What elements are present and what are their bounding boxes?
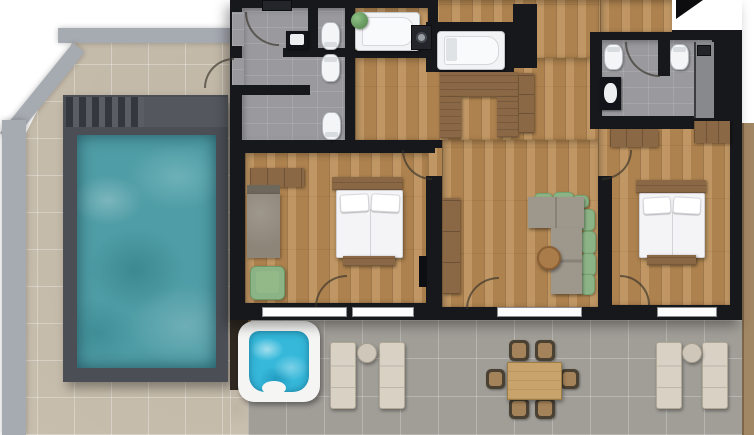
window [262,307,347,317]
east-edge-strip [742,123,754,435]
bed-bench [647,255,696,265]
window [352,307,414,317]
kitchen-counter [440,72,518,97]
kitchen-counter [497,97,518,137]
bed-headboard [636,180,706,193]
toilet [322,112,341,140]
daybed-head [247,185,280,194]
sun-lounger [656,342,682,409]
dining-chair [509,340,529,361]
armchair [250,266,285,300]
bathtub [437,31,505,70]
swimming-pool-water [77,135,216,368]
coffee-table [537,246,561,270]
wall [598,176,612,306]
sofa-cushion [581,231,596,254]
dining-chair [560,369,579,389]
hallway-floor-ne [600,0,672,32]
pool-ledge [144,97,228,127]
window [497,307,582,317]
toilet [321,54,340,82]
radiator [262,0,292,11]
lounger-side-table [682,343,702,363]
double-bed [639,193,705,258]
dining-table [507,362,562,400]
toilet [604,44,623,70]
sectional-sofa-seat [528,197,584,228]
wall-column [513,4,537,68]
boundary-wall-top [58,28,230,43]
wall-tv [419,256,427,287]
sun-lounger [330,342,356,409]
wall [230,85,310,95]
daybed [247,194,280,258]
double-bed [336,190,403,258]
dining-chair [535,398,555,419]
dining-chair [535,340,555,361]
bed-headboard [332,177,402,190]
dining-chair [509,398,529,419]
toilet [670,44,689,70]
bed-bench [343,256,395,266]
dining-chair [486,369,505,389]
sofa-cushion [580,274,595,295]
shower-head [697,45,711,56]
wardrobe [610,129,658,147]
kitchen-counter [440,97,461,138]
sun-lounger [702,342,728,409]
sun-lounger [379,342,405,409]
washbasin-vanity [600,77,621,110]
wall [426,176,442,306]
floor-plan [0,0,754,435]
toilet [321,22,340,50]
tall-cabinet [519,73,534,133]
plant [351,12,368,29]
boundary-wall-left [2,120,26,435]
lounger-side-table [357,343,377,363]
hot-tub-seat [262,381,286,395]
window [657,307,717,317]
pool-steps [66,97,144,127]
washing-machine [411,25,432,50]
wall [308,8,318,48]
washbasin-vanity [286,31,308,49]
door-opening-west-1 [232,12,244,46]
sideboard [443,198,460,294]
wardrobe [694,121,730,143]
sofa-cushion [581,253,596,276]
